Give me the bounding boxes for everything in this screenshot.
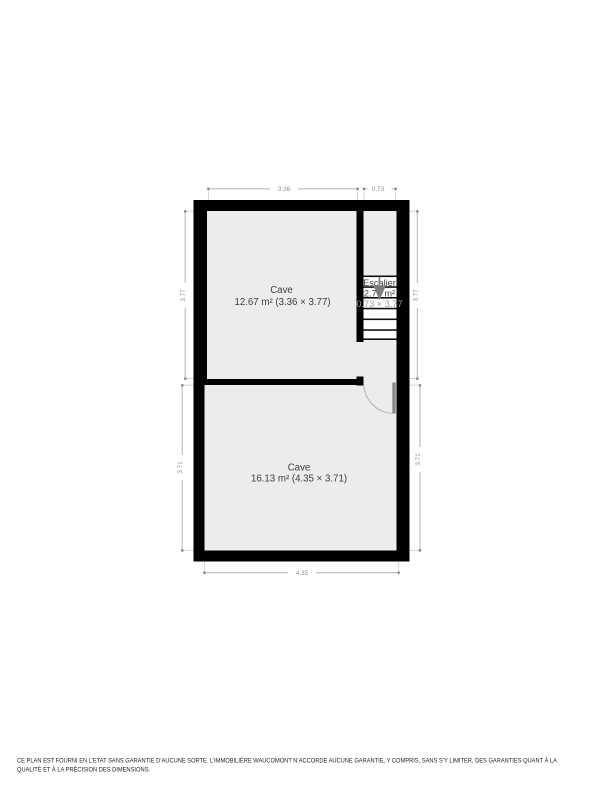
svg-text:0.73 × 3.77: 0.73 × 3.77 xyxy=(356,299,402,309)
svg-text:3.77: 3.77 xyxy=(412,289,419,302)
svg-text:16.13 m² (4.35 × 3.71): 16.13 m² (4.35 × 3.71) xyxy=(251,474,347,485)
svg-text:4.35: 4.35 xyxy=(296,570,309,577)
svg-text:QUALITÉ ET À LA PRÉCISION DES: QUALITÉ ET À LA PRÉCISION DES DIMENSIONS… xyxy=(17,766,150,773)
svg-text:3.77: 3.77 xyxy=(180,289,187,302)
svg-text:CE PLAN EST FOURNI EN L’ETAT S: CE PLAN EST FOURNI EN L’ETAT SANS GARANT… xyxy=(17,757,558,764)
svg-text:Cave: Cave xyxy=(288,463,311,474)
svg-text:3.71: 3.71 xyxy=(177,461,184,474)
svg-text:Cave: Cave xyxy=(270,285,293,296)
svg-text:3.36: 3.36 xyxy=(278,186,291,193)
svg-text:12.67 m² (3.36 × 3.77): 12.67 m² (3.36 × 3.77) xyxy=(234,297,330,308)
svg-text:0.73: 0.73 xyxy=(372,186,385,193)
svg-text:3.71: 3.71 xyxy=(415,453,422,466)
